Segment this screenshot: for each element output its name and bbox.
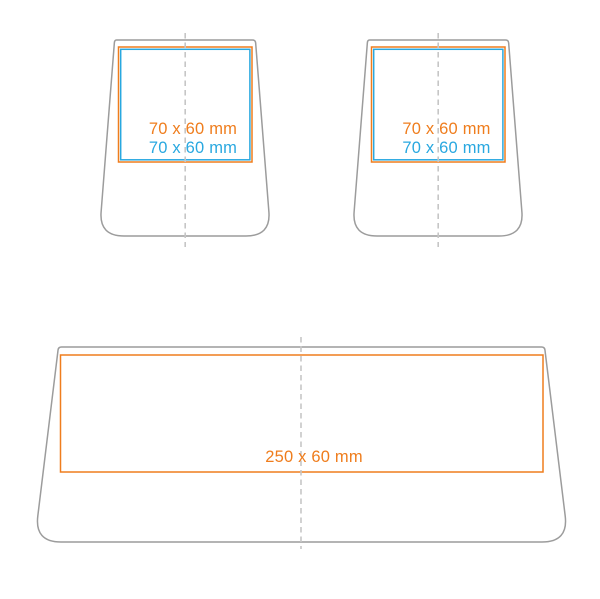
- tray-label-orange: 250 x 60 mm: [265, 448, 363, 466]
- pot-right-label-orange: 70 x 60 mm: [402, 120, 490, 138]
- print-template-canvas: 70 x 60 mm 70 x 60 mm 70 x 60 mm 70 x 60…: [0, 0, 600, 599]
- pot-right-group: 70 x 60 mm 70 x 60 mm: [354, 33, 522, 247]
- print-template-drawing: 70 x 60 mm 70 x 60 mm 70 x 60 mm 70 x 60…: [0, 0, 600, 599]
- pot-left-label-blue: 70 x 60 mm: [149, 139, 237, 157]
- pot-right-label-blue: 70 x 60 mm: [402, 139, 490, 157]
- pot-left-label-orange: 70 x 60 mm: [149, 120, 237, 138]
- tray-group: 250 x 60 mm: [37, 337, 565, 549]
- pot-left-group: 70 x 60 mm 70 x 60 mm: [101, 33, 269, 247]
